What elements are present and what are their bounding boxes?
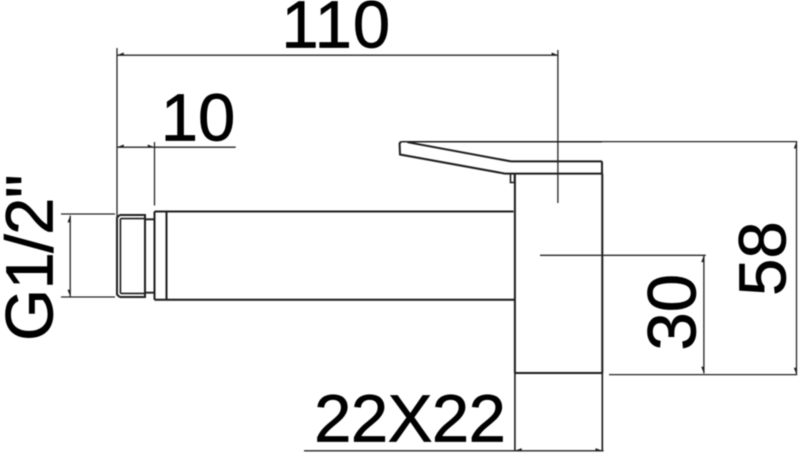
svg-text:58: 58 bbox=[726, 221, 800, 296]
svg-text:30: 30 bbox=[634, 274, 711, 351]
svg-text:110: 110 bbox=[281, 0, 391, 63]
svg-text:22X22: 22X22 bbox=[314, 382, 505, 457]
svg-text:10: 10 bbox=[161, 81, 236, 156]
svg-text:G1/2": G1/2" bbox=[0, 175, 68, 341]
